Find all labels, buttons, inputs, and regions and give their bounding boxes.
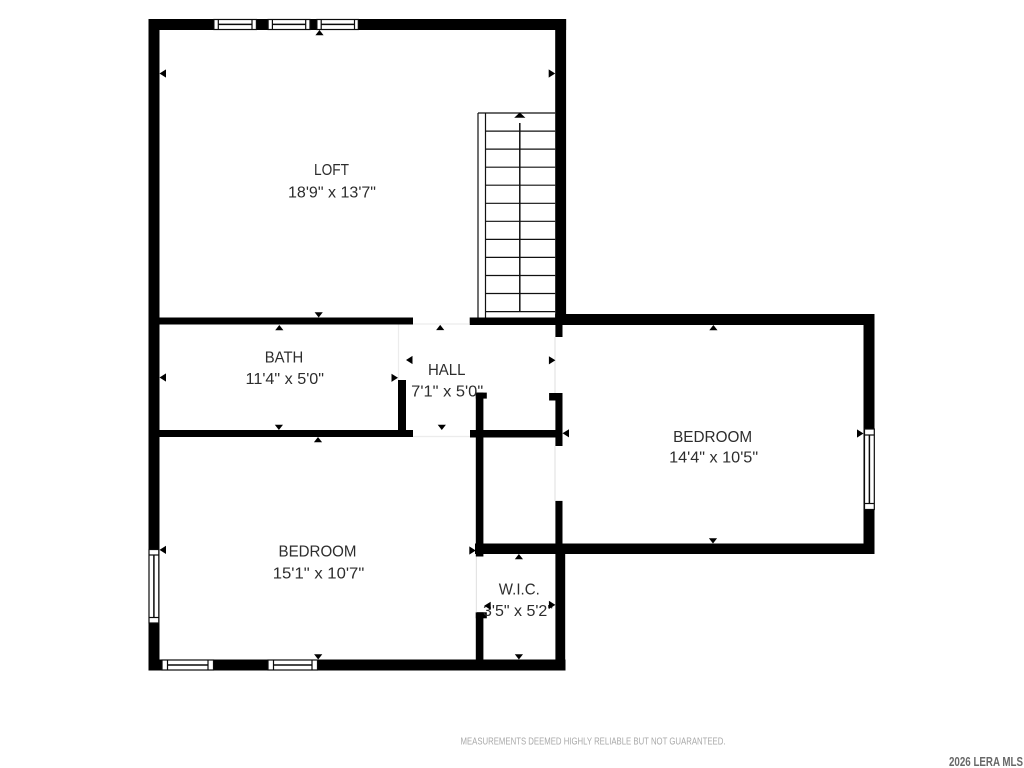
svg-text:11'4" x 5'0": 11'4" x 5'0" bbox=[246, 371, 325, 388]
svg-text:LOFT: LOFT bbox=[314, 162, 349, 179]
svg-text:14'4" x 10'5": 14'4" x 10'5" bbox=[669, 449, 758, 466]
svg-text:3'5" x 5'2": 3'5" x 5'2" bbox=[483, 603, 553, 620]
svg-text:18'9" x 13'7": 18'9" x 13'7" bbox=[288, 184, 376, 201]
svg-text:2026 LERA MLS: 2026 LERA MLS bbox=[949, 755, 1023, 768]
svg-text:BEDROOM: BEDROOM bbox=[673, 429, 752, 446]
svg-text:BATH: BATH bbox=[265, 350, 304, 367]
svg-text:15'1" x 10'7": 15'1" x 10'7" bbox=[273, 565, 365, 582]
svg-text:HALL: HALL bbox=[428, 362, 466, 379]
svg-text:MEASUREMENTS DEEMED HIGHLY REL: MEASUREMENTS DEEMED HIGHLY RELIABLE BUT … bbox=[461, 736, 726, 747]
svg-text:7'1" x 5'0": 7'1" x 5'0" bbox=[411, 383, 483, 400]
svg-text:BEDROOM: BEDROOM bbox=[279, 544, 357, 561]
svg-text:W.I.C.: W.I.C. bbox=[499, 582, 540, 599]
